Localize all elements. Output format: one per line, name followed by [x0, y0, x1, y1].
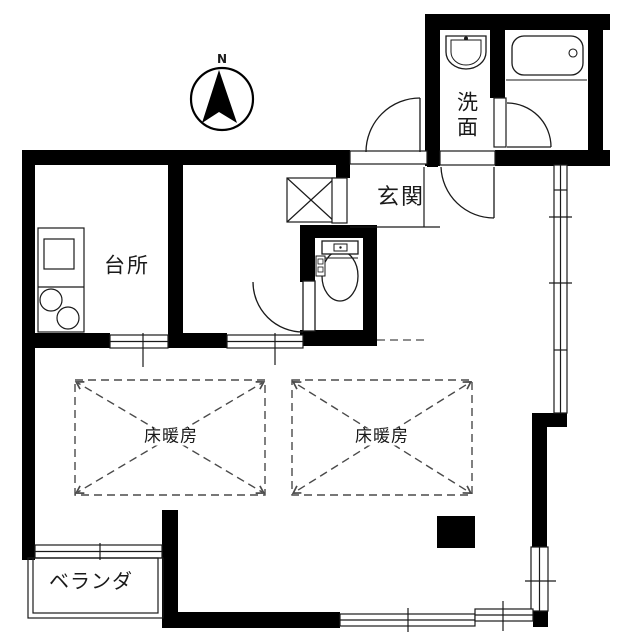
floor-heating-right-label: 床暖房 — [353, 429, 411, 446]
entrance-label: 玄関 — [377, 187, 425, 209]
kitchen-label: 台所 — [104, 256, 150, 277]
north-label: N — [217, 53, 227, 65]
living-sliding-door — [227, 333, 303, 365]
washbasin-icon — [446, 36, 486, 69]
floor-plan-canvas — [0, 0, 617, 640]
washroom-label: 洗面 — [456, 91, 477, 141]
north-compass-icon — [191, 68, 253, 130]
pipe-shaft-icon — [287, 178, 335, 222]
pillar — [437, 516, 475, 548]
front-door — [366, 98, 420, 152]
window-southeast — [525, 547, 556, 611]
kitchen-sliding-door — [110, 333, 168, 367]
bathtub-icon — [506, 36, 587, 80]
shoe-cabinet — [332, 178, 347, 223]
bath-door — [507, 103, 551, 147]
toilet-icon — [316, 241, 358, 301]
floor-plan: N 台所 玄関 洗面 床暖房 床暖房 ベランダ — [0, 0, 617, 640]
kitchen-counter-icon — [38, 228, 84, 332]
toilet-door — [253, 281, 315, 332]
washroom-door — [441, 167, 494, 218]
window-south-right — [475, 601, 533, 631]
window-south-left — [340, 608, 475, 632]
floor-heating-left-label: 床暖房 — [142, 429, 200, 446]
window-east — [549, 165, 572, 413]
veranda-label: ベランダ — [49, 571, 133, 591]
